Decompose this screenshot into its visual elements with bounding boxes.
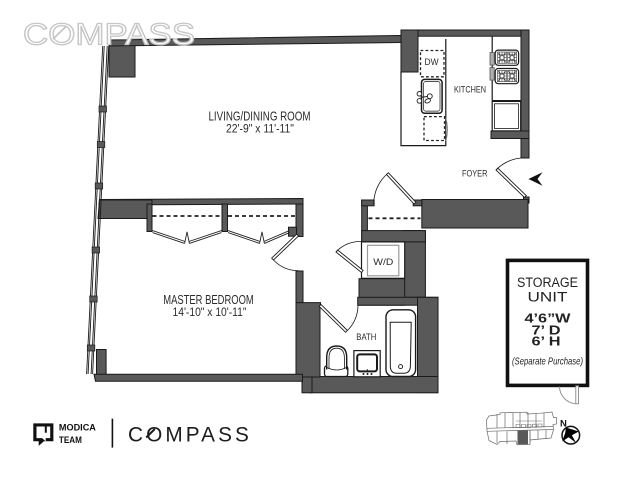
svg-text:COMPASS: COMPASS (128, 422, 252, 446)
svg-text:MODICA: MODICA (59, 422, 96, 433)
svg-text:22'-9" x 11'-11": 22'-9" x 11'-11" (226, 122, 294, 136)
svg-text:COMPASS: COMPASS (23, 17, 195, 52)
svg-text:(Separate Purchase): (Separate Purchase) (512, 357, 583, 368)
svg-text:TEAM: TEAM (59, 435, 82, 446)
svg-text:KITCHEN: KITCHEN (454, 85, 486, 95)
svg-text:FOYER: FOYER (462, 168, 488, 179)
svg-text:W/D: W/D (373, 256, 393, 267)
svg-text:6’ H: 6’ H (532, 335, 561, 349)
svg-text:DW: DW (425, 57, 439, 67)
svg-text:14'-10" x 10'-11": 14'-10" x 10'-11" (173, 305, 247, 319)
svg-text:N: N (560, 419, 567, 430)
svg-text:UNIT: UNIT (528, 290, 568, 306)
svg-text:BATH: BATH (356, 332, 376, 342)
